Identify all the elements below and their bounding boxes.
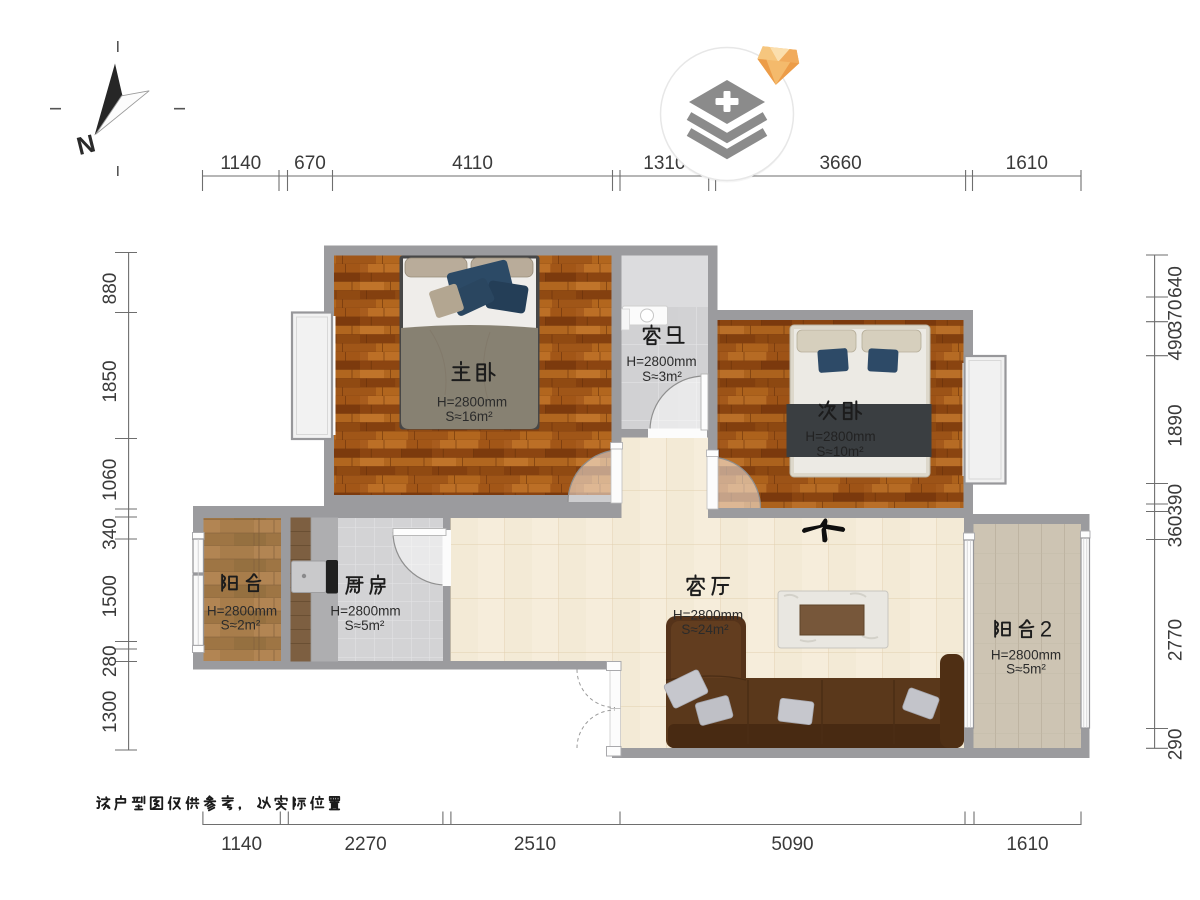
svg-text:2270: 2270 [344, 834, 386, 855]
svg-text:S≈16m²: S≈16m² [445, 409, 493, 424]
svg-text:1850: 1850 [100, 360, 121, 402]
svg-text:2510: 2510 [514, 834, 556, 855]
svg-text:290: 290 [1166, 729, 1187, 761]
svg-text:1500: 1500 [100, 575, 121, 617]
svg-text:S≈3m²: S≈3m² [642, 369, 682, 384]
svg-text:1890: 1890 [1166, 404, 1187, 446]
svg-text:S≈2m²: S≈2m² [221, 618, 261, 633]
svg-text:H=2800mm: H=2800mm [437, 395, 507, 410]
svg-text:640: 640 [1166, 266, 1187, 298]
svg-text:3660: 3660 [819, 153, 861, 174]
svg-text:H=2800mm: H=2800mm [330, 604, 400, 619]
svg-text:340: 340 [100, 518, 121, 550]
svg-text:H=2800mm: H=2800mm [626, 354, 696, 369]
svg-text:S≈10m²: S≈10m² [816, 444, 864, 459]
svg-text:390: 390 [1166, 484, 1187, 516]
svg-text:H=2800mm: H=2800mm [991, 648, 1061, 663]
svg-text:S≈24m²: S≈24m² [681, 622, 729, 637]
svg-text:2770: 2770 [1166, 619, 1187, 661]
svg-text:1060: 1060 [100, 459, 121, 501]
svg-text:370: 370 [1166, 300, 1187, 332]
svg-text:S≈5m²: S≈5m² [1006, 662, 1046, 677]
svg-text:1610: 1610 [1006, 834, 1048, 855]
svg-text:1300: 1300 [100, 691, 121, 733]
svg-text:1140: 1140 [221, 834, 262, 855]
svg-text:H=2800mm: H=2800mm [207, 604, 277, 619]
svg-text:880: 880 [100, 273, 121, 305]
svg-text:S≈5m²: S≈5m² [345, 618, 385, 633]
svg-text:490: 490 [1166, 329, 1187, 361]
svg-text:360: 360 [1166, 516, 1187, 548]
svg-text:1610: 1610 [1006, 153, 1048, 174]
svg-text:H=2800mm: H=2800mm [805, 429, 875, 444]
svg-text:1140: 1140 [220, 153, 261, 174]
svg-text:H=2800mm: H=2800mm [673, 608, 743, 623]
svg-text:670: 670 [294, 153, 326, 174]
svg-text:5090: 5090 [771, 834, 813, 855]
svg-text:280: 280 [100, 645, 121, 677]
svg-text:4110: 4110 [452, 153, 493, 174]
svg-text:2: 2 [1040, 617, 1052, 642]
